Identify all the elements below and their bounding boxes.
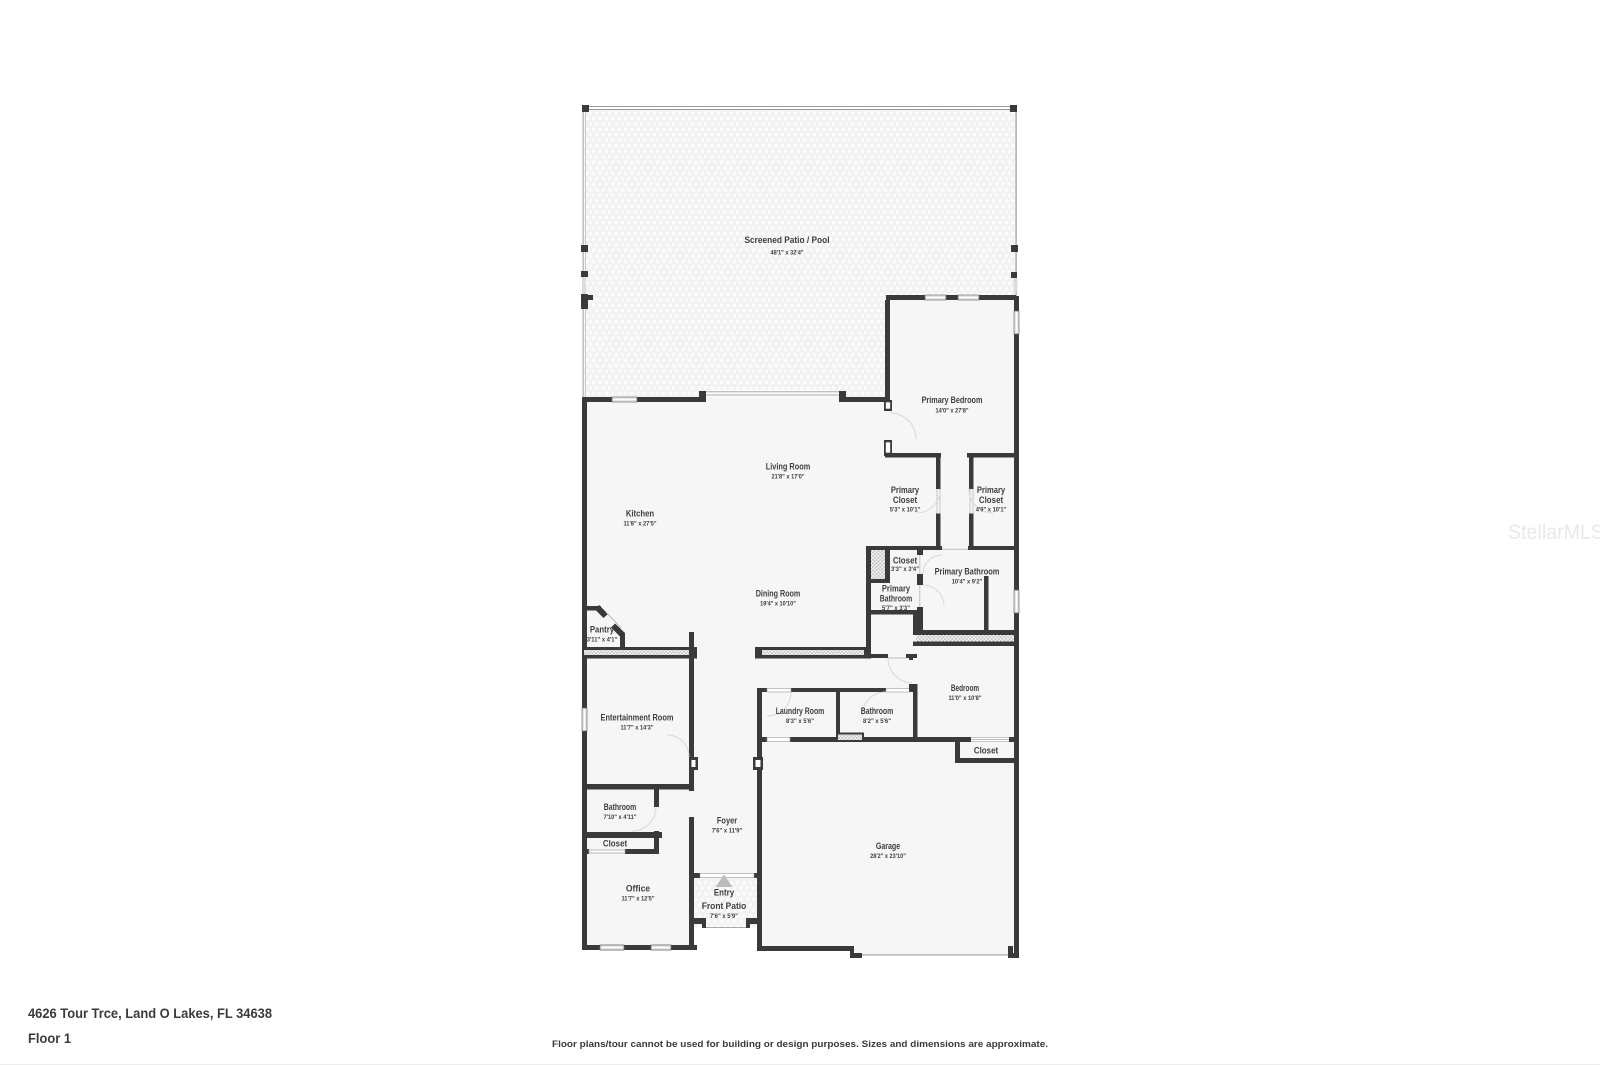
- svg-text:4626 Tour Trce, Land O Lakes,: 4626 Tour Trce, Land O Lakes, FL 34638: [28, 1006, 272, 1021]
- svg-text:Front Patio: Front Patio: [702, 901, 747, 912]
- svg-text:28'2" x 23'10": 28'2" x 23'10": [870, 853, 906, 860]
- svg-text:Primary Bathroom: Primary Bathroom: [935, 567, 1000, 578]
- svg-text:Pantry: Pantry: [590, 625, 615, 636]
- svg-text:8'3" x 5'6": 8'3" x 5'6": [786, 718, 814, 725]
- svg-text:Closet: Closet: [893, 495, 918, 506]
- svg-text:StellarMLS: StellarMLS: [1508, 521, 1600, 544]
- svg-text:Living Room: Living Room: [766, 462, 811, 473]
- svg-text:Garage: Garage: [876, 841, 900, 852]
- svg-text:11'7" x 14'3": 11'7" x 14'3": [620, 725, 653, 732]
- svg-text:Floor 1: Floor 1: [28, 1031, 71, 1046]
- svg-text:Bathroom: Bathroom: [861, 706, 893, 717]
- svg-text:Office: Office: [626, 884, 650, 895]
- svg-text:Bathroom: Bathroom: [880, 594, 912, 604]
- svg-text:11'7" x 12'5": 11'7" x 12'5": [621, 896, 654, 903]
- svg-text:3'3" x 3'4": 3'3" x 3'4": [891, 566, 919, 573]
- svg-text:Screened Patio / Pool: Screened Patio / Pool: [745, 235, 830, 246]
- svg-text:Entry: Entry: [714, 888, 735, 899]
- svg-text:48'1" x 32'4": 48'1" x 32'4": [770, 250, 803, 257]
- svg-text:Closet: Closet: [979, 495, 1004, 506]
- svg-text:8'2" x 5'6": 8'2" x 5'6": [863, 718, 891, 725]
- svg-text:Closet: Closet: [603, 839, 627, 849]
- svg-text:Bedroom: Bedroom: [951, 683, 979, 694]
- svg-text:Bathroom: Bathroom: [604, 802, 636, 813]
- svg-text:Foyer: Foyer: [717, 816, 737, 827]
- svg-text:Entertainment Room: Entertainment Room: [601, 713, 674, 724]
- svg-text:4'9" x 10'1": 4'9" x 10'1": [976, 507, 1007, 514]
- svg-text:Closet: Closet: [893, 556, 917, 566]
- svg-text:Dining Room: Dining Room: [756, 589, 801, 600]
- svg-text:19'4" x 10'10": 19'4" x 10'10": [760, 601, 796, 608]
- svg-text:21'8" x 17'0": 21'8" x 17'0": [771, 474, 804, 481]
- svg-text:10'4" x 9'2": 10'4" x 9'2": [952, 579, 983, 586]
- svg-text:Primary: Primary: [882, 584, 910, 594]
- svg-text:14'0" x 27'8": 14'0" x 27'8": [935, 408, 968, 415]
- svg-text:Primary Bedroom: Primary Bedroom: [922, 395, 983, 406]
- svg-text:Floor plans/tour cannot be use: Floor plans/tour cannot be used for buil…: [552, 1039, 1048, 1050]
- svg-text:3'11" x 4'1": 3'11" x 4'1": [587, 637, 618, 644]
- svg-text:7'6" x 11'9": 7'6" x 11'9": [712, 828, 743, 835]
- svg-text:Kitchen: Kitchen: [626, 509, 654, 520]
- svg-text:11'0" x 10'8": 11'0" x 10'8": [948, 695, 981, 702]
- svg-text:7'6" x 5'9": 7'6" x 5'9": [710, 913, 738, 920]
- svg-text:Closet: Closet: [974, 746, 998, 756]
- svg-text:7'10" x 4'11": 7'10" x 4'11": [603, 814, 636, 821]
- svg-text:5'7" x 3'3": 5'7" x 3'3": [882, 605, 910, 612]
- svg-text:5'3" x 10'1": 5'3" x 10'1": [890, 507, 921, 514]
- svg-text:11'8" x 27'5": 11'8" x 27'5": [623, 521, 656, 528]
- svg-text:Laundry Room: Laundry Room: [776, 706, 825, 717]
